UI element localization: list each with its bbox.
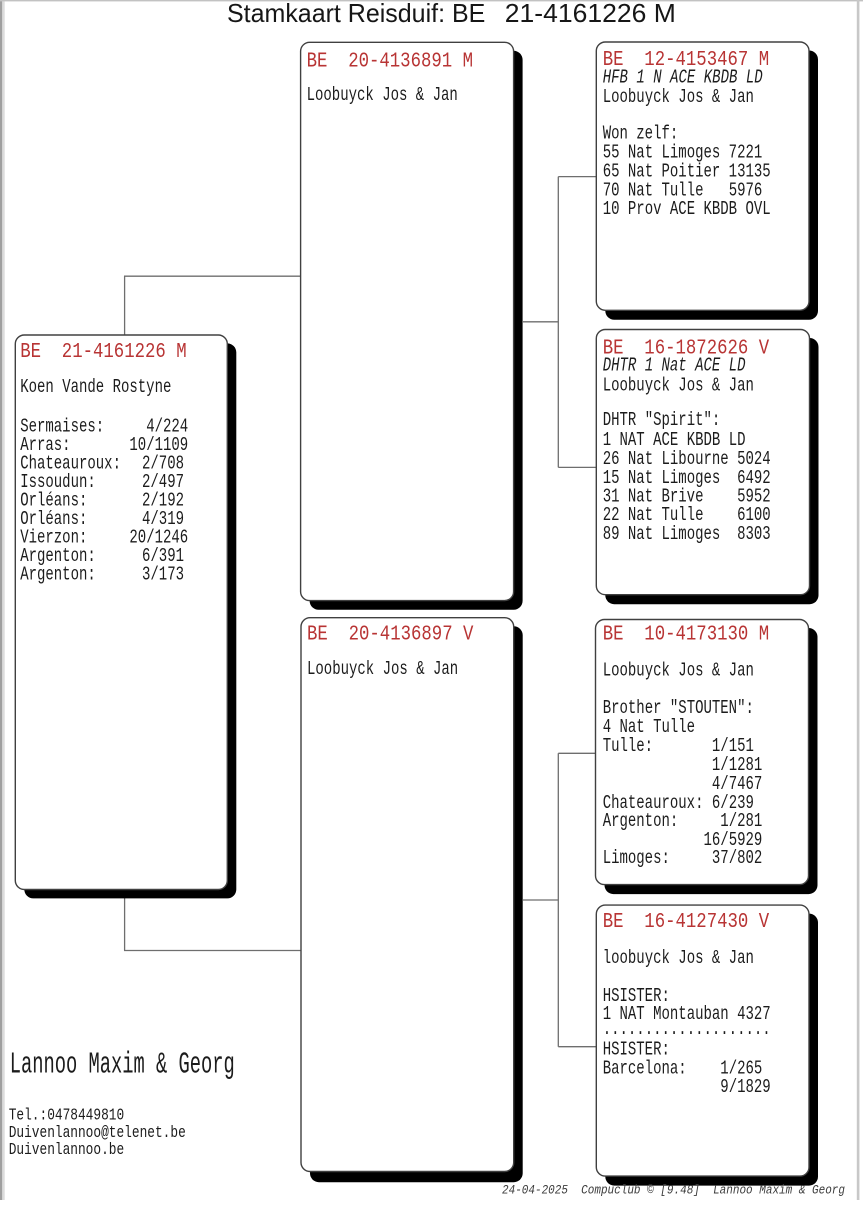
- svg-text:3/173: 3/173: [142, 564, 184, 586]
- svg-text:loobuyck Jos & Jan: loobuyck Jos & Jan: [603, 947, 754, 969]
- svg-text:Argenton:: Argenton:: [20, 564, 96, 586]
- svg-text:20-4136897 V: 20-4136897 V: [349, 622, 474, 646]
- svg-text:21-4161226 M: 21-4161226 M: [505, 0, 676, 28]
- svg-text:10 Prov ACE KBDB OVL: 10 Prov ACE KBDB OVL: [603, 198, 771, 220]
- svg-text:BE: BE: [603, 910, 624, 934]
- svg-text:Loobuyck Jos & Jan: Loobuyck Jos & Jan: [307, 658, 458, 680]
- svg-text:Loobuyck Jos & Jan: Loobuyck Jos & Jan: [603, 660, 754, 682]
- svg-text:BE: BE: [307, 50, 328, 74]
- svg-text:Tel.:0478449810: Tel.:0478449810: [9, 1107, 125, 1126]
- svg-text:BE: BE: [603, 623, 624, 647]
- svg-text:20-4136891 M: 20-4136891 M: [348, 50, 473, 74]
- svg-text:37/802: 37/802: [712, 847, 762, 869]
- svg-text:BE: BE: [20, 340, 41, 364]
- svg-text:89 Nat Limoges: 89 Nat Limoges: [603, 523, 721, 545]
- svg-text:24-04-2025 Compuclub © [9.48]: 24-04-2025 Compuclub © [9.48] Lannoo Max…: [502, 1183, 845, 1198]
- svg-text:16-4127430 V: 16-4127430 V: [644, 910, 769, 934]
- svg-text:Tulle:: Tulle:: [603, 735, 653, 757]
- svg-text:BE: BE: [307, 622, 328, 646]
- svg-text:Duivenlannoo.be: Duivenlannoo.be: [9, 1141, 125, 1160]
- svg-text:Limoges:: Limoges:: [603, 847, 670, 869]
- svg-text:DHTR 1 Nat ACE LD: DHTR 1 Nat ACE LD: [603, 355, 746, 377]
- svg-text:Duivenlannoo@telenet.be: Duivenlannoo@telenet.be: [9, 1124, 186, 1143]
- svg-text:Argenton:: Argenton:: [603, 810, 679, 832]
- svg-text:Lannoo Maxim & Georg: Lannoo Maxim & Georg: [10, 1048, 235, 1082]
- svg-text:8303: 8303: [737, 523, 771, 545]
- svg-text:Loobuyck Jos & Jan: Loobuyck Jos & Jan: [603, 86, 754, 108]
- svg-text:10-4173130 M: 10-4173130 M: [644, 623, 769, 647]
- svg-text:Stamkaart Reisduif: BE: Stamkaart Reisduif: BE: [227, 0, 485, 28]
- svg-text:9/1829: 9/1829: [720, 1076, 770, 1098]
- svg-text:Barcelona:: Barcelona:: [603, 1058, 687, 1080]
- svg-text:21-4161226 M: 21-4161226 M: [62, 340, 187, 364]
- svg-text:Koen Vande Rostyne: Koen Vande Rostyne: [20, 376, 171, 398]
- svg-text:Loobuyck Jos & Jan: Loobuyck Jos & Jan: [603, 374, 754, 396]
- svg-text:Loobuyck Jos & Jan: Loobuyck Jos & Jan: [307, 84, 458, 106]
- svg-text:....................: ....................: [603, 1018, 771, 1040]
